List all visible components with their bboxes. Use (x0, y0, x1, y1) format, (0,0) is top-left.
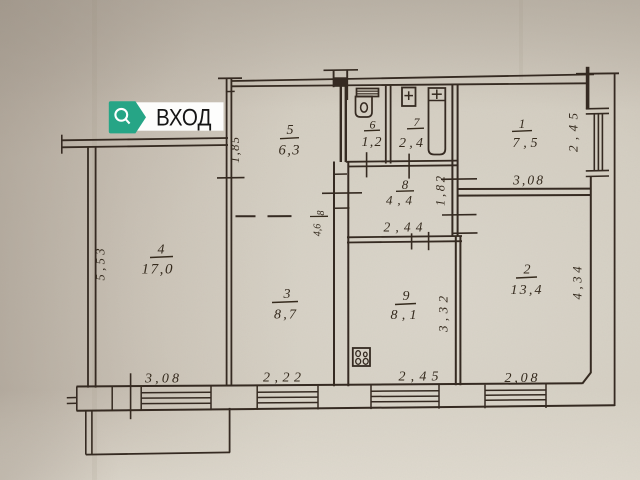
svg-text:8: 8 (402, 177, 409, 192)
svg-text:5: 5 (287, 123, 294, 138)
svg-text:17,0: 17,0 (142, 262, 174, 278)
svg-text:2,08: 2,08 (505, 371, 538, 386)
svg-text:4,4: 4,4 (386, 193, 413, 208)
svg-text:1,85: 1,85 (228, 137, 242, 163)
svg-text:2,45: 2,45 (566, 113, 581, 153)
svg-text:7,5: 7,5 (513, 136, 538, 151)
svg-text:5,53: 5,53 (94, 249, 108, 281)
svg-text:4,6: 4,6 (313, 224, 324, 237)
svg-text:8,7: 8,7 (274, 308, 297, 323)
svg-text:13,4: 13,4 (511, 283, 542, 298)
svg-text:4: 4 (158, 243, 165, 258)
svg-text:1,82: 1,82 (434, 176, 448, 206)
svg-text:2,44: 2,44 (384, 220, 423, 235)
svg-text:8,1: 8,1 (391, 308, 417, 323)
svg-text:7: 7 (414, 115, 421, 129)
svg-text:6,3: 6,3 (279, 143, 300, 159)
svg-text:1: 1 (519, 116, 526, 131)
svg-text:2,22: 2,22 (263, 371, 301, 386)
svg-text:2: 2 (524, 263, 531, 278)
svg-text:6: 6 (370, 118, 376, 132)
svg-text:ВХОД: ВХОД (156, 104, 212, 131)
svg-text:3,32: 3,32 (436, 296, 451, 334)
svg-text:2,4: 2,4 (399, 136, 423, 151)
svg-text:2,45: 2,45 (399, 370, 439, 385)
svg-text:8: 8 (316, 211, 327, 216)
svg-text:3,08: 3,08 (144, 372, 179, 387)
svg-text:1,2: 1,2 (362, 135, 382, 150)
svg-text:4,34: 4,34 (571, 267, 585, 300)
svg-text:3: 3 (283, 287, 291, 302)
svg-text:3,08: 3,08 (512, 173, 543, 188)
svg-text:9: 9 (403, 289, 410, 304)
